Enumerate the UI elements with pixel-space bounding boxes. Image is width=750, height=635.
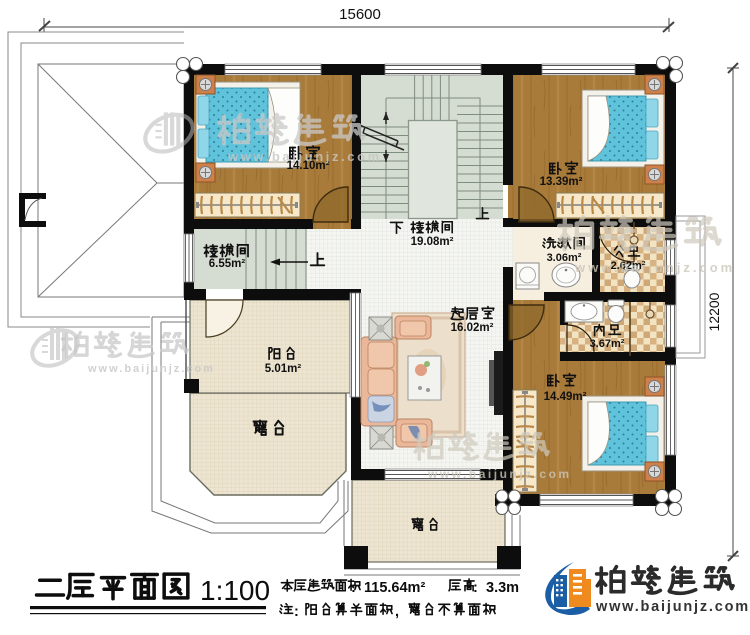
svg-text:www.baijunjz.com: www.baijunjz.com [427,467,572,481]
svg-text:13.39m²: 13.39m² [540,176,583,188]
svg-text:115.64m²: 115.64m² [364,580,425,596]
svg-text:www.baijunjz.com: www.baijunjz.com [227,149,382,164]
svg-text:3.3m: 3.3m [486,580,519,596]
svg-text:www.baijunjz.com: www.baijunjz.com [595,599,750,615]
svg-text:1:100: 1:100 [200,575,270,606]
svg-text:15600: 15600 [339,6,381,23]
svg-text:5.01m²: 5.01m² [265,363,302,375]
svg-text:www.baijunjz.com: www.baijunjz.com [574,260,735,275]
svg-text:19.08m²: 19.08m² [411,236,454,248]
svg-text:16.02m²: 16.02m² [451,322,494,334]
svg-text:www.baijunjz.com: www.baijunjz.com [87,363,215,375]
svg-text::: : [473,580,478,596]
svg-text:,: , [395,604,399,620]
svg-text::: : [294,604,299,620]
svg-text:12200: 12200 [706,292,722,331]
svg-text:6.55m²: 6.55m² [209,258,246,270]
svg-text::: : [351,580,356,596]
svg-text:3.67m²: 3.67m² [590,338,625,350]
svg-text:14.49m²: 14.49m² [544,391,587,403]
